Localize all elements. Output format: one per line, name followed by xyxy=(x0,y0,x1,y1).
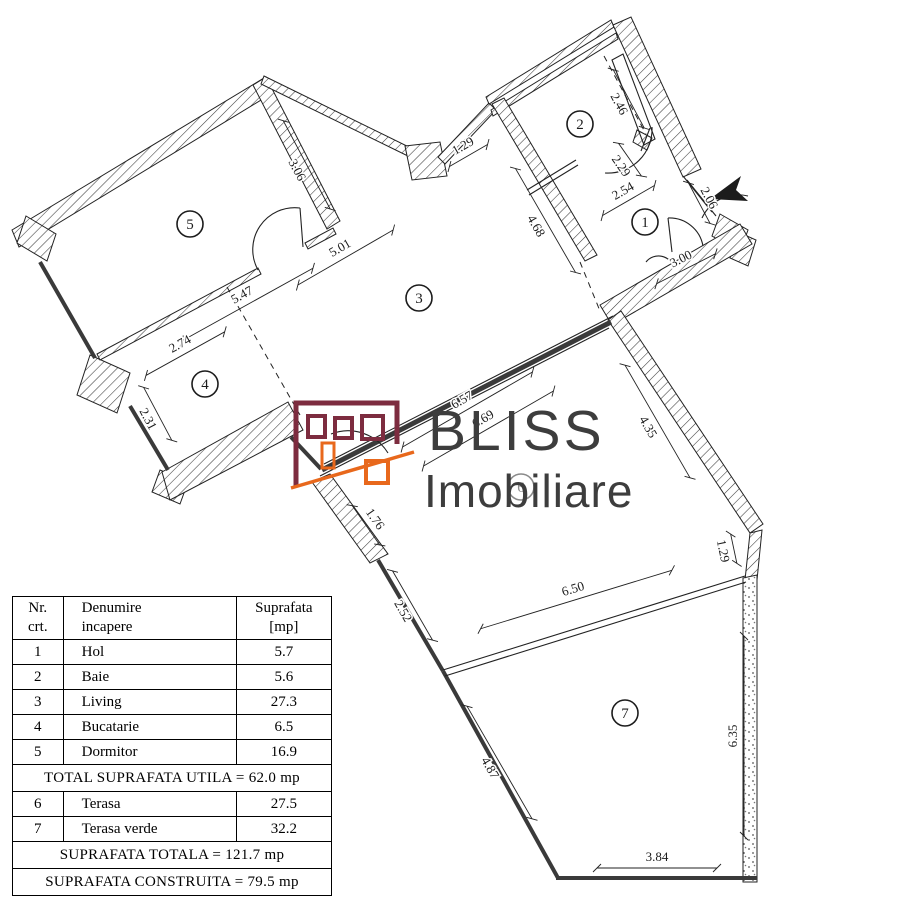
table-cell: 6.5 xyxy=(236,715,331,740)
table-cell: 6 xyxy=(13,792,64,817)
table-cell: 4 xyxy=(13,715,64,740)
table-cell: Baie xyxy=(63,665,236,690)
svg-text:6.35: 6.35 xyxy=(725,725,740,748)
table-cell: Hol xyxy=(63,640,236,665)
dimension-4.87: 4.87 xyxy=(449,701,537,832)
table-row: 1Hol5.7 xyxy=(13,640,332,665)
table-row: 3Living27.3 xyxy=(13,690,332,715)
table-cell: 5 xyxy=(13,740,64,765)
svg-text:5.01: 5.01 xyxy=(326,235,353,259)
logo-text-imobiliare: Imobiliare xyxy=(424,465,633,517)
table-row: 6Terasa27.5 xyxy=(13,792,332,817)
table-cell: 32.2 xyxy=(236,817,331,842)
table-cell: Terasa verde xyxy=(63,817,236,842)
room-number-2: 2 xyxy=(567,111,593,137)
svg-text:4.35: 4.35 xyxy=(636,413,660,440)
table-cell: Bucatarie xyxy=(63,715,236,740)
room-number-3: 3 xyxy=(406,285,432,311)
svg-text:2.54: 2.54 xyxy=(609,178,637,203)
room-number-5: 5 xyxy=(177,211,203,237)
svg-text:7: 7 xyxy=(621,706,629,722)
svg-text:6.50: 6.50 xyxy=(560,578,586,599)
table-row: 5Dormitor16.9 xyxy=(13,740,332,765)
table-cell: Terasa xyxy=(63,792,236,817)
svg-text:4: 4 xyxy=(201,377,209,393)
table-row: 2Baie5.6 xyxy=(13,665,332,690)
svg-text:2.29: 2.29 xyxy=(609,152,634,179)
table-cell: Living xyxy=(63,690,236,715)
table-cell: Dormitor xyxy=(63,740,236,765)
svg-text:5: 5 xyxy=(186,217,194,233)
exterior-walls xyxy=(12,17,763,580)
subtotal-row: TOTAL SUPRAFATA UTILA = 62.0 mp xyxy=(13,765,332,792)
table-cell: 27.3 xyxy=(236,690,331,715)
built-row-cell: SUPRAFATA CONSTRUITA = 79.5 mp xyxy=(13,869,332,896)
dimension-6.50: 6.50 xyxy=(471,551,677,634)
dimension-2.52: 2.52 xyxy=(375,565,438,652)
table-header-row: Nr. crt. Denumire incapere Suprafata [mp… xyxy=(13,597,332,640)
table-cell: 16.9 xyxy=(236,740,331,765)
svg-text:2.74: 2.74 xyxy=(166,331,194,355)
dimension-5.01: 5.01 xyxy=(285,212,399,291)
table-cell: 7 xyxy=(13,817,64,842)
table-row: 7Terasa verde32.2 xyxy=(13,817,332,842)
table-cell: 1 xyxy=(13,640,64,665)
svg-text:3.84: 3.84 xyxy=(646,849,669,864)
svg-text:2.31: 2.31 xyxy=(136,405,160,432)
room-number-1: 1 xyxy=(632,209,658,235)
svg-text:3: 3 xyxy=(415,291,423,307)
total-row-cell: SUPRAFATA TOTALA = 121.7 mp xyxy=(13,842,332,869)
header-suprafata: Suprafata [mp] xyxy=(236,597,331,640)
room-number-4: 4 xyxy=(192,371,218,397)
logo-text-bliss: BLISS xyxy=(428,399,605,463)
table-cell: 5.7 xyxy=(236,640,331,665)
dimension-1.29: 1.29 xyxy=(712,529,741,571)
total-row: SUPRAFATA TOTALA = 121.7 mp xyxy=(13,842,332,869)
built-row: SUPRAFATA CONSTRUITA = 79.5 mp xyxy=(13,869,332,896)
svg-text:1.29: 1.29 xyxy=(714,538,733,563)
table-cell: 3 xyxy=(13,690,64,715)
svg-text:2.46: 2.46 xyxy=(607,90,631,118)
header-nr: Nr. crt. xyxy=(13,597,64,640)
logo-window-icon xyxy=(308,416,325,437)
dimension-2.74: 2.74 xyxy=(133,313,230,381)
table-cell: 5.6 xyxy=(236,665,331,690)
header-denumire: Denumire incapere xyxy=(63,597,236,640)
area-table: Nr. crt. Denumire incapere Suprafata [mp… xyxy=(12,596,332,896)
subtotal-row-cell: TOTAL SUPRAFATA UTILA = 62.0 mp xyxy=(13,765,332,792)
table-row: 4Bucatarie6.5 xyxy=(13,715,332,740)
svg-text:2.06: 2.06 xyxy=(697,184,721,212)
table-cell: 2 xyxy=(13,665,64,690)
dimension-3.84: 3.84 xyxy=(593,849,721,872)
svg-text:2: 2 xyxy=(576,117,584,133)
svg-text:1: 1 xyxy=(641,215,649,231)
room-number-7: 7 xyxy=(612,700,638,726)
svg-text:4.87: 4.87 xyxy=(478,754,503,782)
floorplan-page: 1234567 3.061.292.462.292.542.064.683.00… xyxy=(0,0,898,900)
dimension-5.47: 5.47 xyxy=(169,250,318,347)
logo-window-icon xyxy=(335,418,352,438)
table-cell: 27.5 xyxy=(236,792,331,817)
svg-text:4.68: 4.68 xyxy=(524,212,548,239)
